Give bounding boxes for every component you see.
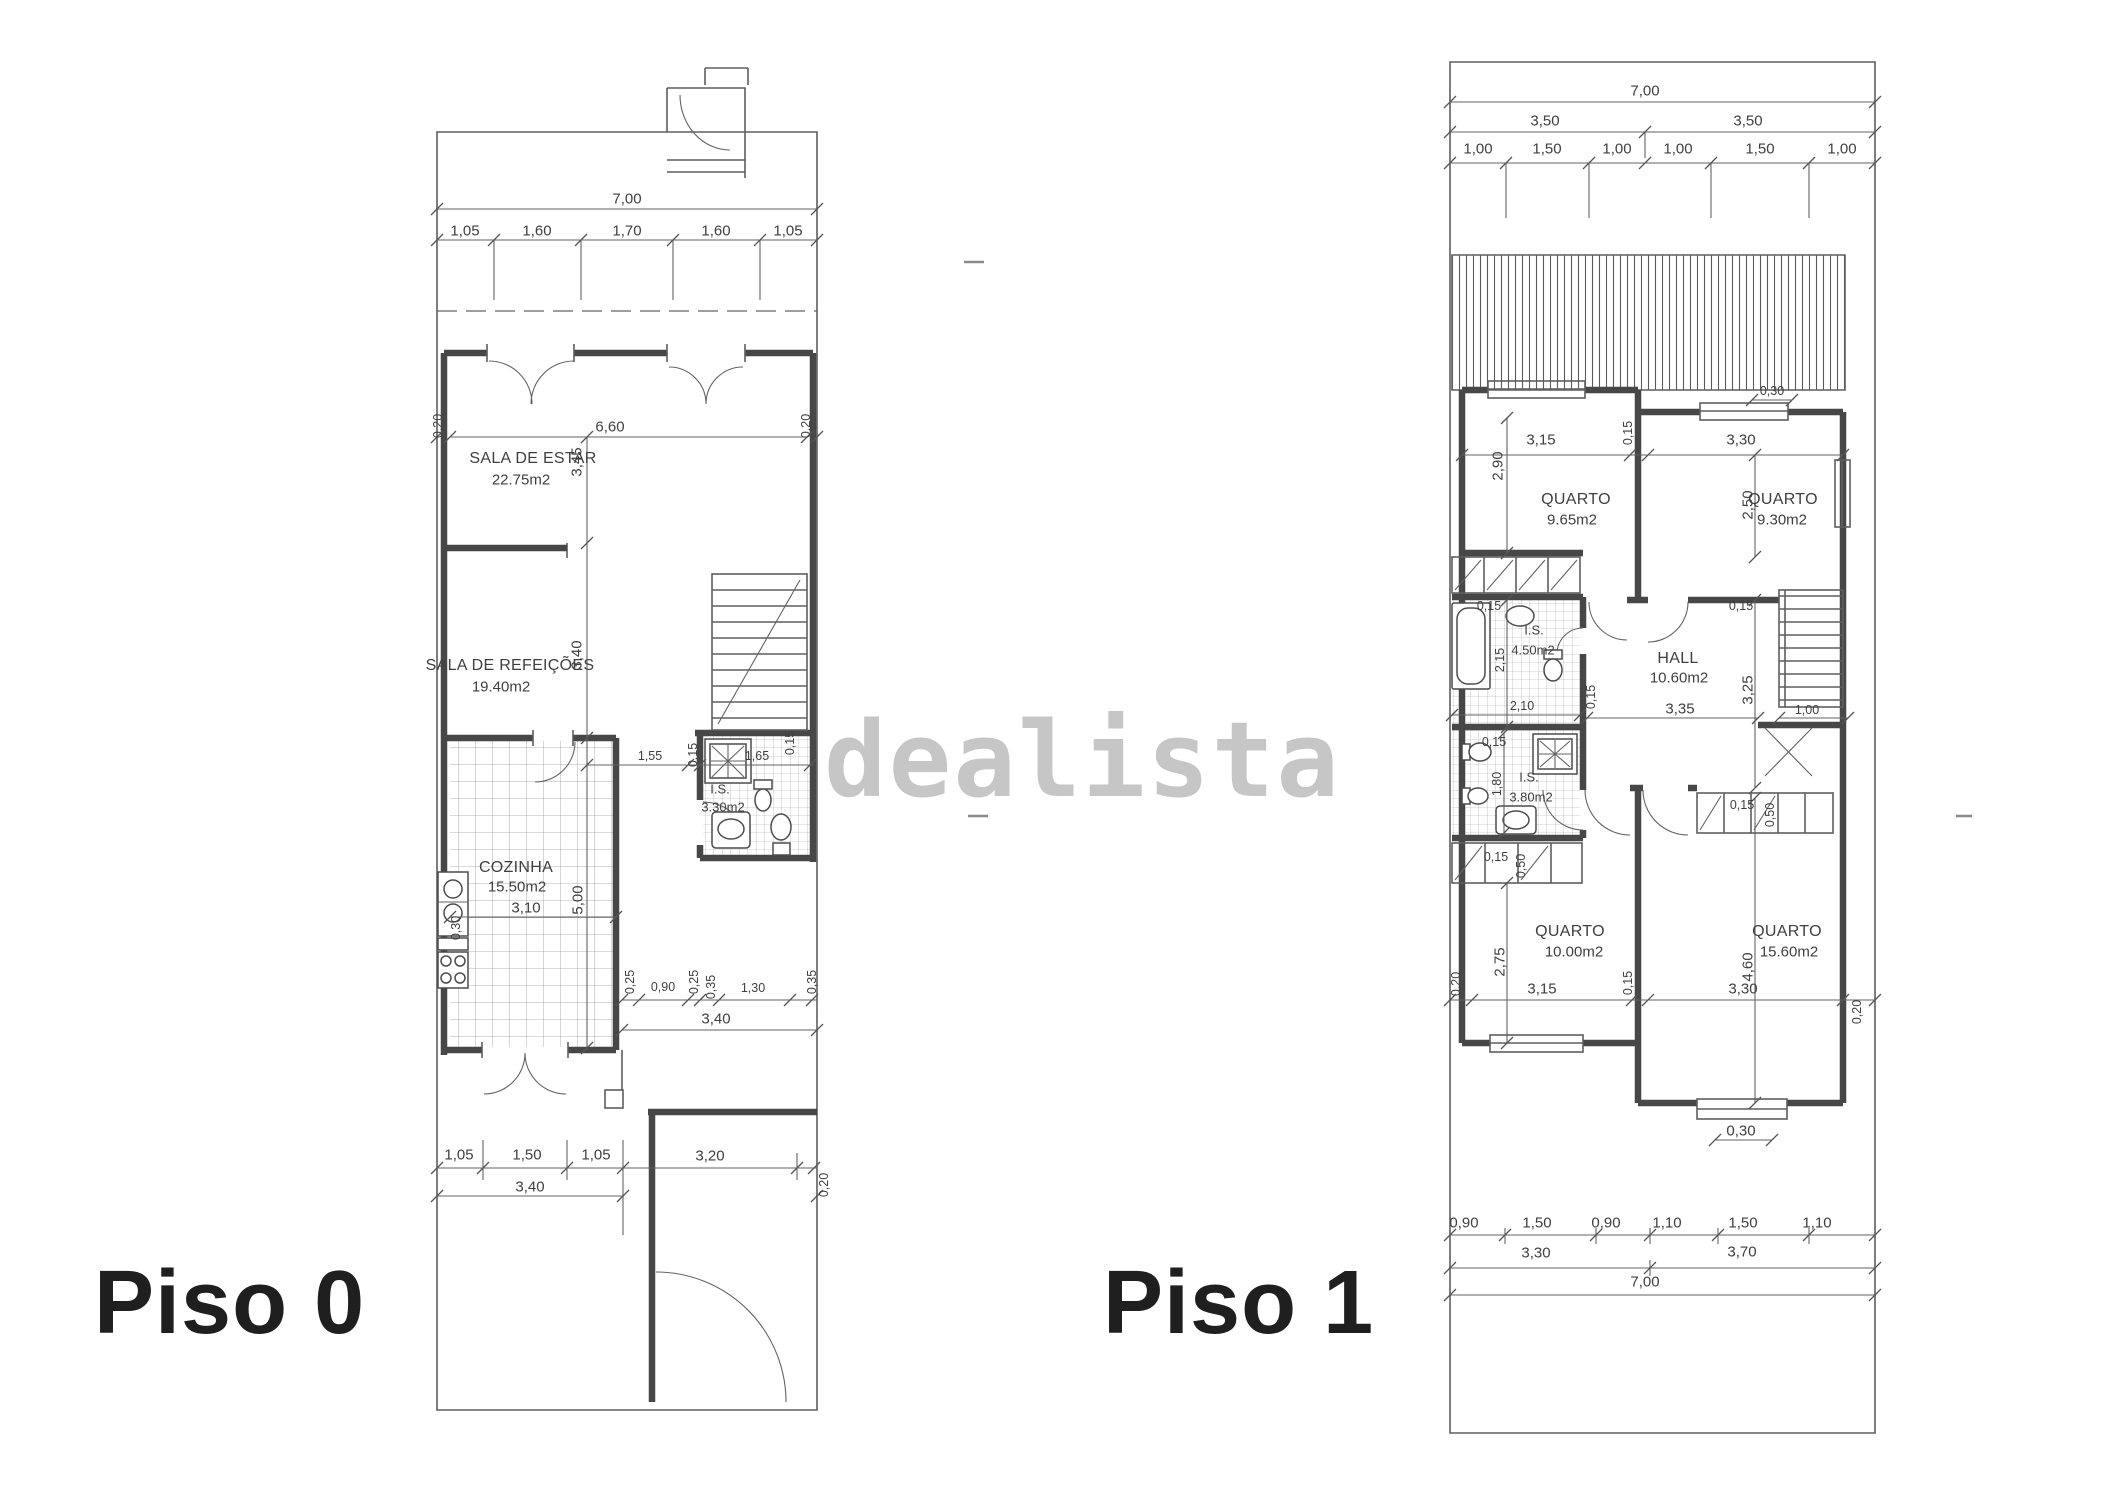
- dimension-label: 3,35: [1665, 702, 1694, 717]
- dimension-label: 1,50: [1522, 1216, 1551, 1231]
- dimension-label: 0,15: [1729, 600, 1753, 613]
- dimension-label: 0,50: [1515, 854, 1528, 878]
- dimension-label: 7,00: [1630, 84, 1659, 99]
- dimension-label: 1,55: [638, 750, 662, 763]
- dimension-label: 0,35: [806, 970, 819, 994]
- dimension-label: 1,00: [1795, 704, 1819, 717]
- dimension-label: 3,30: [1728, 982, 1757, 997]
- dimension-label: 3,40: [515, 1180, 544, 1195]
- dimension-label: 1,65: [745, 750, 769, 763]
- dimension-label: 0,50: [1764, 803, 1777, 827]
- dimension-label: 1,60: [701, 224, 730, 239]
- room-label: QUARTO: [1541, 492, 1611, 508]
- room-label: HALL: [1657, 651, 1698, 667]
- dimension-label: 0,25: [624, 970, 637, 994]
- dimension-label: 2,10: [1510, 700, 1534, 713]
- room-label: QUARTO: [1535, 924, 1605, 940]
- room-area-label: 22.75m2: [492, 473, 550, 488]
- dimension-label: 1,80: [1491, 772, 1504, 796]
- dimension-label: 3,30: [1521, 1246, 1550, 1261]
- room-area-label: 15.50m2: [488, 880, 546, 895]
- room-label: QUARTO: [1748, 492, 1818, 508]
- dimension-label: 0,90: [1591, 1216, 1620, 1231]
- dimension-label: 1,00: [1463, 142, 1492, 157]
- dimension-label: 1,50: [1745, 142, 1774, 157]
- room-label: I.S.: [1524, 624, 1544, 637]
- dimension-label: 0,15: [1484, 851, 1508, 864]
- dimension-label: 0,15: [687, 743, 700, 767]
- dimension-label: 3,50: [1530, 114, 1559, 129]
- dimension-label: 3,25: [1741, 675, 1756, 704]
- dimension-label: 1,05: [444, 1148, 473, 1163]
- dimension-label: 2,75: [1493, 947, 1508, 976]
- dimension-label: 3,40: [701, 1012, 730, 1027]
- dimension-label: 1,05: [581, 1148, 610, 1163]
- dimension-label: 1,70: [612, 224, 641, 239]
- dimension-label: 3,50: [1733, 114, 1762, 129]
- room-area-label: 9.65m2: [1547, 513, 1597, 528]
- dimension-label: 0,15: [1622, 421, 1635, 445]
- dimension-label: 0,20: [800, 414, 813, 438]
- dimension-label: 0,25: [688, 970, 701, 994]
- dimension-label: 0,20: [432, 414, 445, 438]
- room-label: QUARTO: [1752, 924, 1822, 940]
- dimension-label: 2,15: [1494, 648, 1507, 672]
- dimension-label: 0,20: [818, 1173, 831, 1197]
- room-area-label: 10.60m2: [1650, 671, 1708, 686]
- dimension-label: 0,30: [450, 916, 463, 940]
- dimension-label: 1,10: [1652, 1216, 1681, 1231]
- dimension-label: 1,50: [512, 1148, 541, 1163]
- dimension-label: 2,90: [1491, 451, 1506, 480]
- dimension-label: 0,15: [1622, 971, 1635, 995]
- dimension-label: 4,60: [1741, 952, 1756, 981]
- dimension-label: 1,05: [450, 224, 479, 239]
- dimension-label: 1,00: [1663, 142, 1692, 157]
- dimension-label: 3,10: [511, 901, 540, 916]
- room-label: COZINHA: [479, 860, 553, 876]
- watermark: dealista: [824, 708, 1341, 812]
- dimension-label: 3,20: [695, 1149, 724, 1164]
- dimension-label: 7,00: [612, 192, 641, 207]
- room-label: 3.80m2: [1509, 791, 1552, 804]
- dimension-label: 7,00: [1630, 1275, 1659, 1290]
- dimension-label: 1,00: [1602, 142, 1631, 157]
- dimension-label: 0,15: [1482, 736, 1506, 749]
- dimension-label: 3,40: [570, 640, 585, 669]
- dimension-label: 1,05: [773, 224, 802, 239]
- dimension-label: 0,30: [1726, 1124, 1755, 1139]
- room-label: I.S.: [1519, 771, 1539, 784]
- dimension-label: 0,15: [784, 731, 797, 755]
- dimension-label: 3,70: [1727, 1245, 1756, 1260]
- dimension-label: 0,15: [1477, 600, 1501, 613]
- dimension-label: 3,45: [570, 447, 585, 476]
- floor0-title: Piso 0: [94, 1258, 365, 1348]
- room-label: 4.50m2: [1511, 644, 1554, 657]
- room-area-label: 9.30m2: [1757, 513, 1807, 528]
- dimension-label: 0,15: [1730, 799, 1754, 812]
- dimension-label: 1,30: [741, 982, 765, 995]
- dimension-label: 0,15: [1585, 685, 1598, 709]
- dimension-label: 1,60: [522, 224, 551, 239]
- room-area-label: 15.60m2: [1760, 945, 1818, 960]
- room-area-label: 19.40m2: [472, 680, 530, 695]
- dimension-label: 0,30: [1760, 385, 1784, 398]
- dimension-label: 0,90: [1449, 1216, 1478, 1231]
- dimension-label: 6,60: [595, 420, 624, 435]
- dimension-label: 0,35: [705, 975, 718, 999]
- dimension-label: 1,50: [1532, 142, 1561, 157]
- dimension-label: 1,50: [1728, 1216, 1757, 1231]
- dimension-label: 5,00: [571, 885, 586, 914]
- floorplan-page: dealista Piso 0 Piso 1 7,001,051,601,701…: [0, 0, 2114, 1510]
- dimension-label: 0,20: [1851, 1000, 1864, 1024]
- dimension-label: 0,20: [1450, 972, 1463, 996]
- dimension-label: 3,15: [1527, 982, 1556, 997]
- dimension-label: 0,90: [651, 981, 675, 994]
- dimension-label: 3,30: [1726, 433, 1755, 448]
- dimension-label: 1,00: [1827, 142, 1856, 157]
- dimension-label: 3,15: [1526, 433, 1555, 448]
- room-label: I.S.: [710, 783, 730, 796]
- room-area-label: 10.00m2: [1545, 945, 1603, 960]
- room-label: 3.30m2: [701, 801, 744, 814]
- floor1-title: Piso 1: [1103, 1258, 1374, 1348]
- dimension-label: 1,10: [1802, 1216, 1831, 1231]
